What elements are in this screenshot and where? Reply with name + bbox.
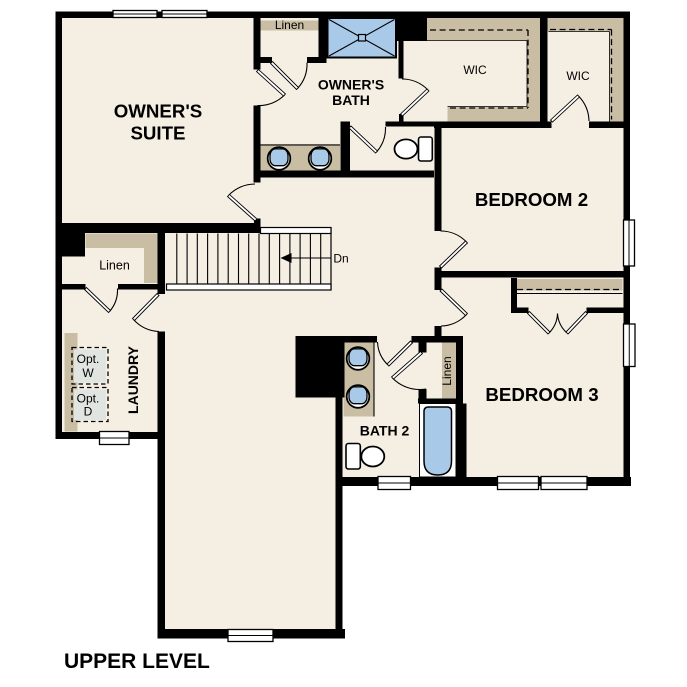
svg-text:D: D	[84, 405, 93, 419]
svg-text:Opt.: Opt.	[77, 392, 100, 406]
svg-text:Linen: Linen	[99, 259, 130, 273]
svg-text:Opt.: Opt.	[77, 352, 100, 366]
svg-text:UPPER LEVEL: UPPER LEVEL	[64, 650, 210, 673]
svg-text:Linen: Linen	[440, 356, 454, 385]
svg-text:OWNER'S: OWNER'S	[318, 77, 384, 93]
svg-text:WIC: WIC	[566, 69, 590, 83]
svg-text:SUITE: SUITE	[130, 123, 185, 144]
svg-text:WIC: WIC	[463, 63, 487, 77]
svg-text:BEDROOM 3: BEDROOM 3	[485, 384, 598, 405]
svg-text:Dn: Dn	[333, 252, 348, 266]
svg-text:Linen: Linen	[275, 18, 304, 32]
svg-text:BEDROOM 2: BEDROOM 2	[475, 189, 588, 210]
svg-text:BATH 2: BATH 2	[360, 423, 410, 439]
svg-text:LAUNDRY: LAUNDRY	[125, 345, 141, 414]
svg-text:W: W	[82, 366, 94, 380]
svg-text:BATH: BATH	[332, 92, 370, 108]
svg-text:OWNER'S: OWNER'S	[114, 101, 203, 122]
